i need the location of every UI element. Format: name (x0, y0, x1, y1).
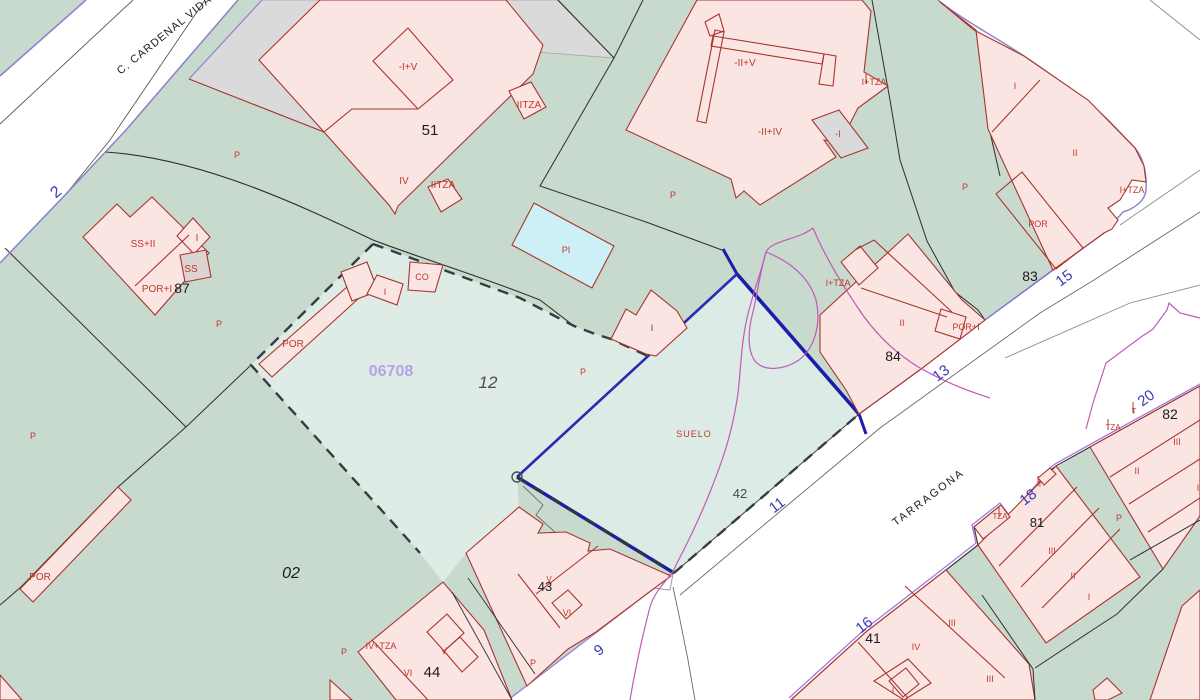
svg-text:83: 83 (1022, 268, 1038, 284)
svg-text:II: II (1134, 466, 1139, 476)
svg-text:POR: POR (282, 339, 304, 350)
svg-text:P: P (530, 658, 536, 668)
svg-text:T: T (1132, 407, 1137, 416)
svg-text:SS: SS (184, 264, 198, 275)
svg-text:SS+II: SS+II (131, 239, 156, 250)
svg-text:IV+TZA: IV+TZA (366, 641, 397, 651)
svg-text:II: II (1070, 571, 1075, 581)
svg-text:P: P (1116, 513, 1122, 523)
svg-text:I: I (1088, 592, 1091, 602)
svg-text:POR+I: POR+I (952, 322, 979, 332)
svg-text:I+TZA: I+TZA (826, 278, 851, 288)
svg-text:P: P (962, 182, 968, 192)
svg-text:TZA: TZA (992, 512, 1008, 521)
svg-text:-II+V: -II+V (734, 58, 756, 69)
svg-text:44: 44 (424, 664, 441, 681)
svg-text:POR+I: POR+I (142, 284, 172, 295)
svg-text:TZA: TZA (1105, 423, 1121, 432)
svg-text:IV: IV (912, 642, 921, 652)
svg-text:I: I (892, 686, 895, 696)
svg-text:42: 42 (733, 486, 747, 501)
svg-text:-II+IV: -II+IV (758, 127, 783, 138)
svg-text:P: P (580, 367, 586, 377)
svg-text:III: III (1048, 546, 1056, 556)
svg-text:II: II (899, 318, 904, 328)
svg-text:PI: PI (562, 245, 571, 255)
svg-text:43: 43 (538, 579, 552, 594)
svg-text:P: P (216, 319, 222, 329)
svg-text:III: III (1173, 437, 1181, 447)
svg-text:I: I (196, 233, 199, 244)
svg-text:SUELO: SUELO (676, 429, 712, 439)
svg-text:III: III (986, 674, 994, 684)
svg-text:POR: POR (29, 572, 51, 583)
svg-text:84: 84 (885, 348, 901, 364)
svg-text:V: V (441, 646, 447, 656)
svg-text:-I+V: -I+V (399, 62, 418, 73)
svg-text:06708: 06708 (369, 363, 414, 380)
svg-text:I: I (1014, 81, 1017, 91)
svg-text:VI: VI (563, 608, 572, 618)
svg-text:CO: CO (415, 272, 429, 282)
svg-text:I: I (651, 323, 654, 333)
svg-text:02: 02 (282, 565, 300, 582)
svg-text:87: 87 (174, 280, 190, 296)
svg-text:I: I (1197, 483, 1200, 493)
svg-text:I+TZA: I+TZA (1120, 185, 1145, 195)
svg-text:IITZA: IITZA (431, 180, 456, 191)
svg-text:P: P (234, 150, 240, 160)
svg-text:III: III (948, 618, 956, 628)
svg-text:81: 81 (1030, 515, 1044, 530)
svg-text:51: 51 (422, 122, 439, 139)
svg-text:12: 12 (479, 373, 498, 392)
svg-text:P: P (341, 647, 347, 657)
svg-text:POR: POR (1028, 219, 1048, 229)
svg-text:82: 82 (1162, 406, 1178, 422)
svg-text:P: P (670, 190, 676, 200)
svg-text:IITZA: IITZA (517, 100, 542, 111)
svg-text:-I: -I (835, 129, 841, 139)
svg-text:II: II (1072, 148, 1077, 158)
svg-text:T: T (1038, 480, 1043, 489)
svg-text:IV: IV (399, 176, 409, 187)
svg-text:P: P (30, 431, 36, 441)
svg-text:I: I (384, 287, 387, 297)
svg-text:VI: VI (404, 668, 413, 678)
svg-text:I+TZA: I+TZA (862, 77, 887, 87)
